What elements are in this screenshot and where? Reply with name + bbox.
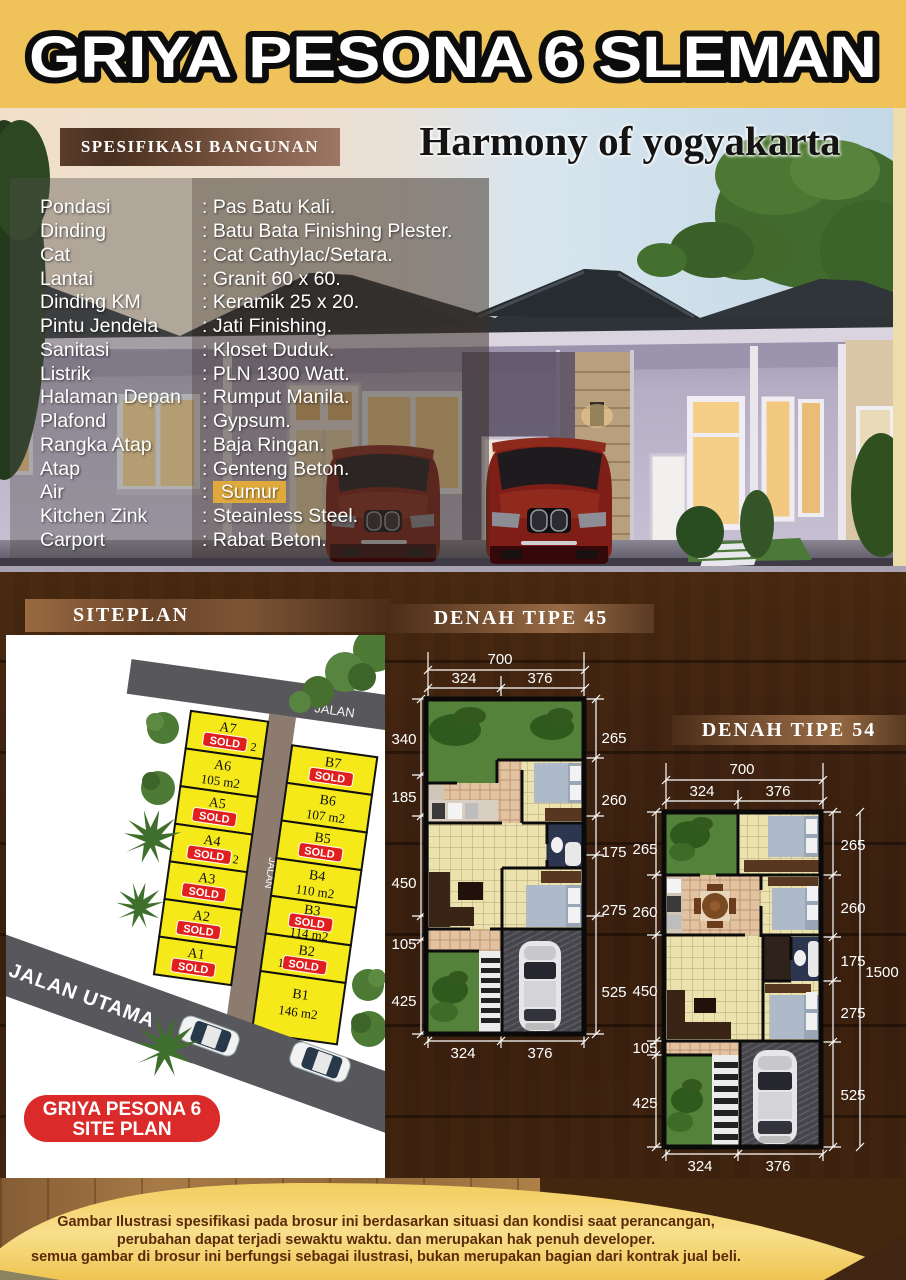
svg-text:105: 105: [391, 936, 416, 953]
svg-text:376: 376: [765, 783, 790, 800]
svg-text:700: 700: [487, 651, 512, 668]
svg-text:265: 265: [632, 841, 657, 858]
svg-text:260: 260: [632, 904, 657, 921]
svg-text:GRIYA PESONA 6: GRIYA PESONA 6: [43, 1099, 201, 1120]
svg-text:425: 425: [391, 993, 416, 1010]
svg-text:450: 450: [632, 983, 657, 1000]
svg-text:700: 700: [729, 761, 754, 778]
svg-text:525: 525: [840, 1087, 865, 1104]
svg-text:340: 340: [391, 731, 416, 748]
svg-text:SITE PLAN: SITE PLAN: [72, 1119, 171, 1140]
svg-text:324: 324: [450, 1045, 475, 1062]
svg-text:175: 175: [840, 953, 865, 970]
svg-text:324: 324: [689, 783, 714, 800]
svg-text:376: 376: [527, 670, 552, 687]
svg-text:425: 425: [632, 1095, 657, 1112]
svg-text:450: 450: [391, 875, 416, 892]
svg-text:275: 275: [840, 1005, 865, 1022]
svg-text:GRIYA PESONA 6 SLEMAN: GRIYA PESONA 6 SLEMAN: [29, 25, 877, 90]
svg-text:376: 376: [527, 1045, 552, 1062]
svg-text:324: 324: [451, 670, 476, 687]
svg-text:260: 260: [840, 900, 865, 917]
svg-text:1500: 1500: [865, 964, 898, 981]
svg-text:B1: B1: [291, 987, 309, 1004]
svg-text:185: 185: [391, 789, 416, 806]
svg-text:105: 105: [632, 1040, 657, 1057]
svg-text:265: 265: [840, 837, 865, 854]
